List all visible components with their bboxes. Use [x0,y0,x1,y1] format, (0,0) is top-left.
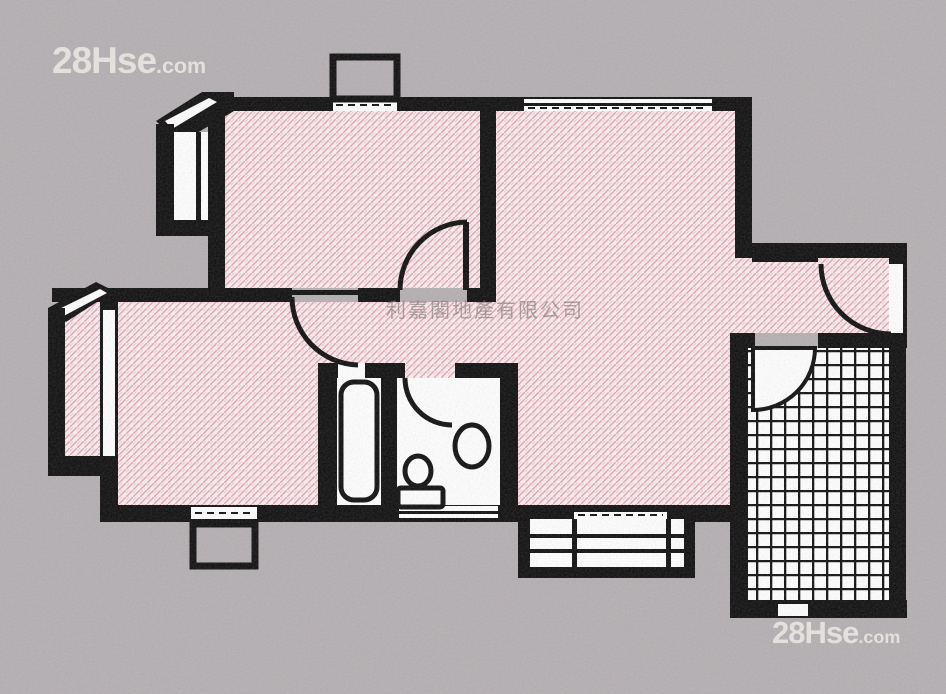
brand-tld: .com [858,627,900,647]
noise-overlay [0,0,946,694]
brand-text: 28Hse [52,40,156,81]
brand-text: 28Hse [772,615,858,650]
floor-plan-image: 28Hse.com 利嘉閣地產有限公司 28Hse.com [0,0,946,694]
brand-tld: .com [156,54,206,78]
company-watermark: 利嘉閣地產有限公司 [386,294,584,323]
watermark-bottom-right: 28Hse.com [772,617,900,648]
floor-plan-svg [0,0,946,694]
watermark-top-left: 28Hse.com [52,42,206,79]
